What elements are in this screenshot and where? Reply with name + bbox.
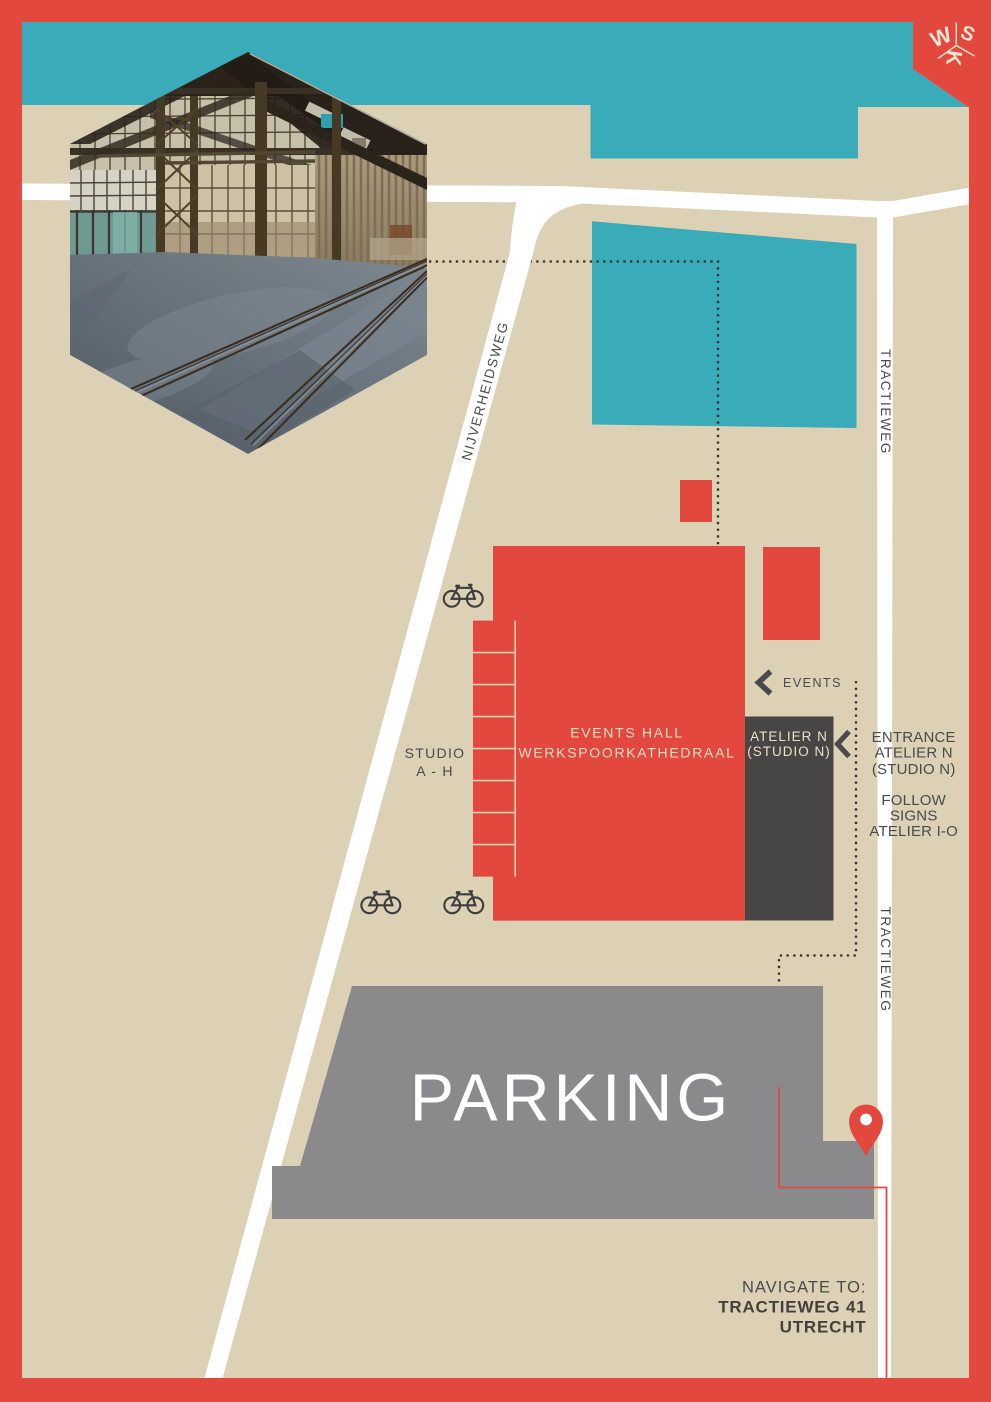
svg-text:ATELIER N: ATELIER N (750, 729, 828, 744)
svg-text:ENTRANCE: ENTRANCE (872, 729, 956, 746)
svg-text:ATELIER I-O: ATELIER I-O (869, 823, 958, 840)
svg-text:A - H: A - H (416, 763, 454, 779)
svg-text:TRACTIEWEG: TRACTIEWEG (878, 907, 893, 1013)
svg-text:TRACTIEWEG: TRACTIEWEG (878, 349, 893, 455)
svg-text:PARKING: PARKING (410, 1062, 732, 1136)
svg-text:UTRECHT: UTRECHT (780, 1318, 867, 1337)
svg-text:EVENTS HALL: EVENTS HALL (570, 724, 684, 740)
svg-text:NAVIGATE TO:: NAVIGATE TO: (742, 1278, 866, 1296)
svg-text:EVENTS: EVENTS (783, 676, 842, 690)
svg-text:ATELIER N: ATELIER N (875, 745, 953, 762)
svg-text:K: K (941, 49, 966, 67)
svg-text:(STUDIO N): (STUDIO N) (747, 744, 831, 759)
svg-text:STUDIO: STUDIO (405, 745, 466, 761)
svg-text:(STUDIO N): (STUDIO N) (872, 761, 956, 778)
svg-text:WERKSPOORKATHEDRAAL: WERKSPOORKATHEDRAAL (518, 744, 735, 760)
svg-text:TRACTIEWEG 41: TRACTIEWEG 41 (718, 1297, 866, 1316)
svg-text:SIGNS: SIGNS (890, 807, 938, 824)
